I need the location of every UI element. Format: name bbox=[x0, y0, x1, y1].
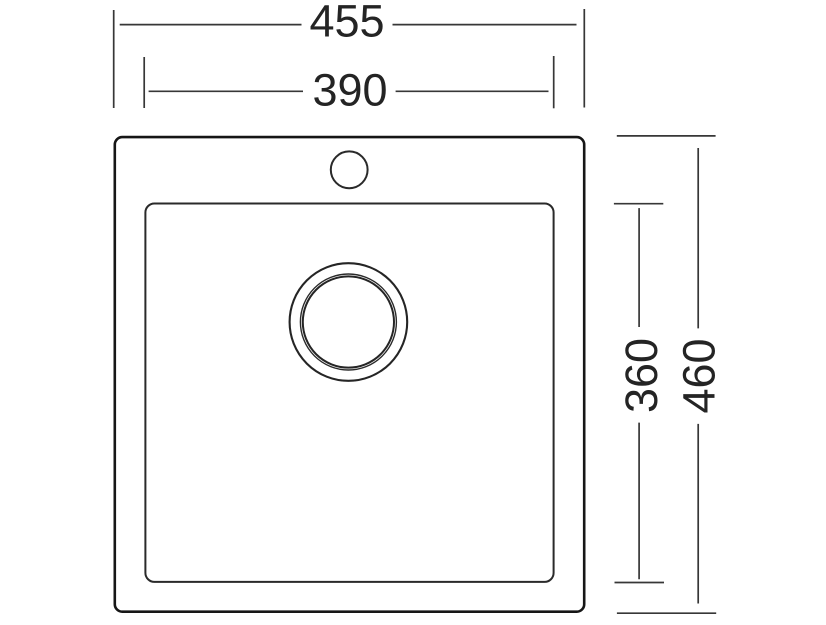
svg-text:455: 455 bbox=[309, 0, 384, 46]
svg-text:390: 390 bbox=[312, 65, 387, 116]
svg-text:360: 360 bbox=[616, 338, 667, 413]
svg-text:460: 460 bbox=[674, 338, 725, 413]
